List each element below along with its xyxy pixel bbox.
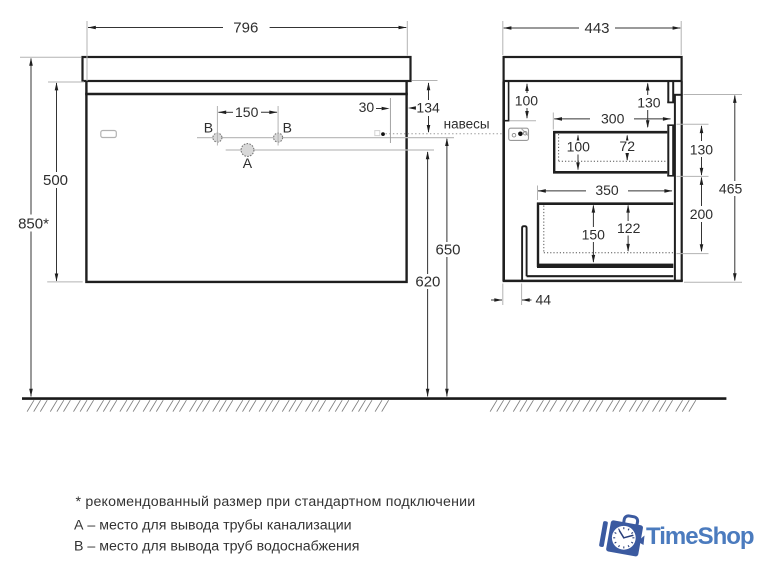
svg-text:А – место для вывода трубы кан: А – место для вывода трубы канализации <box>74 518 352 534</box>
svg-text:200: 200 <box>690 206 714 222</box>
svg-text:100: 100 <box>515 92 539 108</box>
svg-text:500: 500 <box>43 172 68 189</box>
svg-text:150: 150 <box>582 227 606 243</box>
svg-text:В – место для вывода труб водо: В – место для вывода труб водоснабжения <box>74 539 359 555</box>
svg-text:130: 130 <box>637 95 661 111</box>
svg-text:300: 300 <box>601 110 625 126</box>
svg-text:796: 796 <box>233 20 258 37</box>
svg-text:B: B <box>204 120 213 136</box>
svg-text:465: 465 <box>719 181 743 197</box>
svg-text:B: B <box>283 120 292 136</box>
svg-text:A: A <box>243 155 253 171</box>
svg-text:350: 350 <box>595 182 619 198</box>
svg-text:TimeShop: TimeShop <box>646 523 754 550</box>
svg-text:620: 620 <box>415 273 440 290</box>
svg-text:навесы: навесы <box>444 116 490 131</box>
svg-text:130: 130 <box>690 141 714 157</box>
svg-text:443: 443 <box>584 20 609 37</box>
svg-text:30: 30 <box>359 99 375 115</box>
svg-text:* рекомендованный размер при с: * рекомендованный размер при стандартном… <box>76 494 476 510</box>
svg-text:100: 100 <box>567 139 591 155</box>
svg-text:44: 44 <box>536 292 552 308</box>
svg-text:650: 650 <box>435 241 460 258</box>
svg-text:850*: 850* <box>18 215 49 232</box>
svg-text:134: 134 <box>416 100 440 116</box>
svg-text:150: 150 <box>235 104 259 120</box>
svg-text:72: 72 <box>619 138 635 154</box>
svg-text:122: 122 <box>617 220 641 236</box>
